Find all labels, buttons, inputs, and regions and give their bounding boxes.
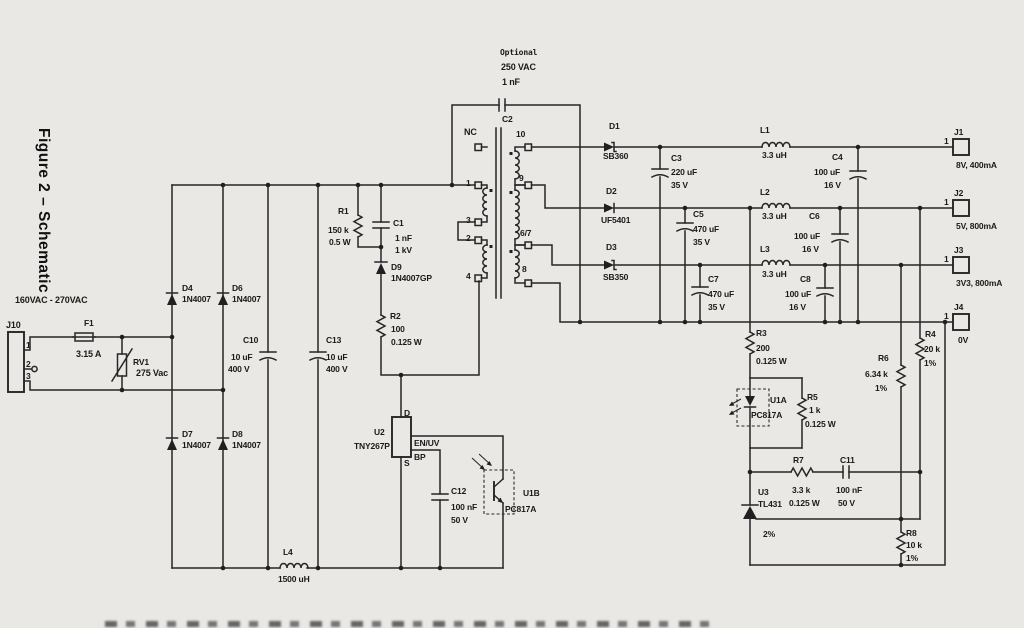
- j1-output-label: 8V, 400mA: [956, 161, 997, 170]
- j10-pin1-label: 1: [26, 341, 31, 350]
- c6-rating: 16 V: [802, 245, 819, 254]
- d9-part: 1N4007GP: [391, 274, 432, 283]
- switcher-symbol: [392, 417, 503, 568]
- c7-rating: 35 V: [708, 303, 725, 312]
- u2-pin-enable: EN/UV: [414, 439, 439, 448]
- xfmr-nc-label: NC: [464, 128, 477, 137]
- bridge-rectifier-symbol: [167, 185, 476, 568]
- varistor-symbol: [112, 337, 132, 390]
- d4-part: 1N4007: [182, 295, 211, 304]
- c3-rating: 35 V: [671, 181, 688, 190]
- j4-ref: J4: [954, 303, 963, 312]
- xfmr-pin-10: 10: [516, 130, 525, 139]
- xfmr-pin-8: 8: [522, 265, 527, 274]
- r4-rating: 1%: [924, 359, 936, 368]
- u1a-part: PC817A: [751, 411, 782, 420]
- varistor-value: 275 Vac: [136, 369, 168, 378]
- u2-pin-bypass: BP: [414, 453, 426, 462]
- xfmr-pin-2: 2: [466, 234, 471, 243]
- r8-rating: 1%: [906, 554, 918, 563]
- c12-rating: 50 V: [451, 516, 468, 525]
- d9-ref: D9: [391, 263, 402, 272]
- j3-ref: J3: [954, 246, 963, 255]
- d4-ref: D4: [182, 284, 193, 293]
- c10-value: 10 uF: [231, 353, 252, 362]
- r7-ref: R7: [793, 456, 804, 465]
- xfmr-pin-67: 6/7: [520, 229, 531, 238]
- r1-value: 150 k: [328, 226, 349, 235]
- c2-note: Optional: [500, 49, 537, 57]
- c13-value: 10 uF: [326, 353, 347, 362]
- c6-ref: C6: [809, 212, 820, 221]
- d7-part: 1N4007: [182, 441, 211, 450]
- j10-pin2-label: 2: [26, 360, 31, 369]
- u2-pin-source: S: [404, 459, 410, 468]
- r7-rating: 0.125 W: [789, 499, 820, 508]
- r6-rating: 1%: [875, 384, 887, 393]
- input-range-label: 160VAC - 270VAC: [15, 296, 87, 305]
- l4-value: 1500 uH: [278, 575, 310, 584]
- r3-rating: 0.125 W: [756, 357, 787, 366]
- d2-ref: D2: [606, 187, 617, 196]
- c7-ref: C7: [708, 275, 719, 284]
- secondary-rails: [532, 143, 954, 323]
- c8-rating: 16 V: [789, 303, 806, 312]
- j3-output-label: 3V3, 800mA: [956, 279, 1002, 288]
- d1-ref: D1: [609, 122, 620, 131]
- j3-pin: 1: [944, 255, 949, 264]
- u1b-ref: U1B: [523, 489, 540, 498]
- c3-value: 220 uF: [671, 168, 697, 177]
- xfmr-pin-3: 3: [466, 216, 471, 225]
- r1-ref: R1: [338, 207, 349, 216]
- r6-value: 6.34 k: [865, 370, 888, 379]
- j2-ref: J2: [954, 189, 963, 198]
- c1-value: 1 nF: [395, 234, 412, 243]
- c7-value: 470 uF: [708, 290, 734, 299]
- u3-tolerance: 2%: [763, 530, 775, 539]
- l1-ref: L1: [760, 126, 770, 135]
- d3-part: SB350: [603, 273, 628, 282]
- u2-ref: U2: [374, 428, 385, 437]
- c2-ref: C2: [502, 115, 513, 124]
- l4-ref: L4: [283, 548, 293, 557]
- u3-part: TL431: [758, 500, 782, 509]
- c3-ref: C3: [671, 154, 682, 163]
- schematic-drawing: [0, 0, 1024, 628]
- r3-ref: R3: [756, 329, 767, 338]
- r8-ref: R8: [906, 529, 917, 538]
- u3-ref: U3: [758, 488, 769, 497]
- scan-artifact: [105, 621, 720, 627]
- c1-ref: C1: [393, 219, 404, 228]
- c1-rating: 1 kV: [395, 246, 412, 255]
- u2-part: TNY267P: [354, 442, 390, 451]
- schematic-screenshot: Figure 2 – Schematic 160VAC - 270VAC J10…: [0, 0, 1024, 628]
- d8-part: 1N4007: [232, 441, 261, 450]
- r6-ref: R6: [878, 354, 889, 363]
- j2-output-label: 5V, 800mA: [956, 222, 997, 231]
- l1-value: 3.3 uH: [762, 151, 787, 160]
- j10-ref: J10: [6, 321, 21, 330]
- j1-pin: 1: [944, 137, 949, 146]
- c4-ref: C4: [832, 153, 843, 162]
- r1-rating: 0.5 W: [329, 238, 350, 247]
- r2-value: 100: [391, 325, 405, 334]
- d1-part: SB360: [603, 152, 628, 161]
- feedback-symbols: [729, 208, 945, 565]
- j10-pin3-label: 3: [26, 372, 31, 381]
- c11-value: 100 nF: [836, 486, 862, 495]
- xfmr-pin-9: 9: [519, 174, 524, 183]
- u2-pin-drain: D: [404, 409, 410, 418]
- c12-value: 100 nF: [451, 503, 477, 512]
- xfmr-pin-1: 1: [466, 179, 471, 188]
- c13-rating: 400 V: [326, 365, 347, 374]
- c10-rating: 400 V: [228, 365, 249, 374]
- j4-pin: 1: [944, 312, 949, 321]
- r4-value: 20 k: [924, 345, 940, 354]
- fuse-ref: F1: [84, 319, 94, 328]
- r8-value: 10 k: [906, 541, 922, 550]
- figure-title: Figure 2 – Schematic: [34, 128, 52, 293]
- l3-ref: L3: [760, 245, 770, 254]
- input-connector-symbol: [8, 332, 223, 392]
- l2-ref: L2: [760, 188, 770, 197]
- r4-ref: R4: [925, 330, 936, 339]
- d6-ref: D6: [232, 284, 243, 293]
- d6-part: 1N4007: [232, 295, 261, 304]
- c5-rating: 35 V: [693, 238, 710, 247]
- c12-ref: C12: [451, 487, 466, 496]
- c5-ref: C5: [693, 210, 704, 219]
- xfmr-pin-4: 4: [466, 272, 471, 281]
- c11-ref: C11: [840, 456, 855, 465]
- r3-value: 200: [756, 344, 770, 353]
- d7-ref: D7: [182, 430, 193, 439]
- u1a-ref: U1A: [770, 396, 787, 405]
- j1-ref: J1: [954, 128, 963, 137]
- c2-value: 1 nF: [502, 78, 520, 87]
- d8-ref: D8: [232, 430, 243, 439]
- varistor-ref: RV1: [133, 358, 149, 367]
- c8-ref: C8: [800, 275, 811, 284]
- c8-value: 100 uF: [785, 290, 811, 299]
- j4-output-label: 0V: [958, 336, 968, 345]
- l3-value: 3.3 uH: [762, 270, 787, 279]
- d3-ref: D3: [606, 243, 617, 252]
- r7-value: 3.3 k: [792, 486, 810, 495]
- d2-part: UF5401: [601, 216, 630, 225]
- r5-value: 1 k: [809, 406, 820, 415]
- l2-value: 3.3 uH: [762, 212, 787, 221]
- r5-rating: 0.125 W: [805, 420, 836, 429]
- c5-value: 470 uF: [693, 225, 719, 234]
- clamp-symbols: [354, 185, 479, 417]
- c13-ref: C13: [326, 336, 341, 345]
- r5-ref: R5: [807, 393, 818, 402]
- c6-value: 100 uF: [794, 232, 820, 241]
- c4-rating: 16 V: [824, 181, 841, 190]
- u1b-part: PC817A: [505, 505, 536, 514]
- c4-value: 100 uF: [814, 168, 840, 177]
- r2-rating: 0.125 W: [391, 338, 422, 347]
- c10-ref: C10: [243, 336, 258, 345]
- r2-ref: R2: [390, 312, 401, 321]
- fuse-value: 3.15 A: [76, 350, 101, 359]
- c2-rating: 250 VAC: [501, 63, 536, 72]
- c11-rating: 50 V: [838, 499, 855, 508]
- j2-pin: 1: [944, 198, 949, 207]
